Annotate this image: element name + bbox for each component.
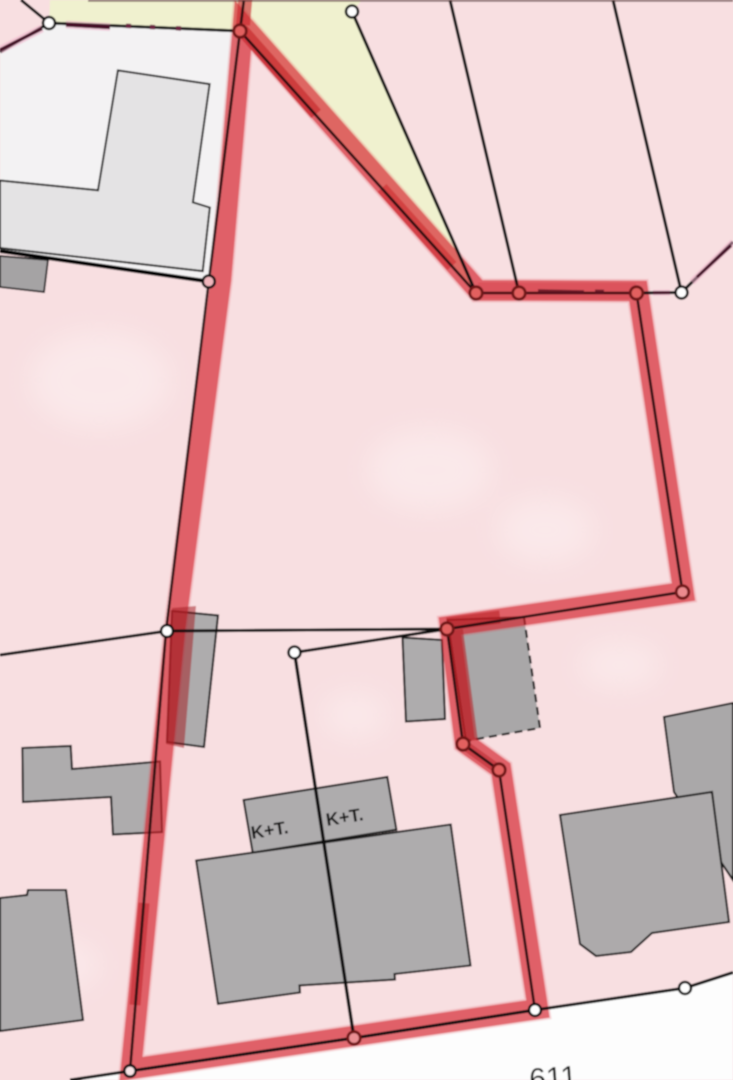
svg-text:611: 611 [528,1060,578,1080]
